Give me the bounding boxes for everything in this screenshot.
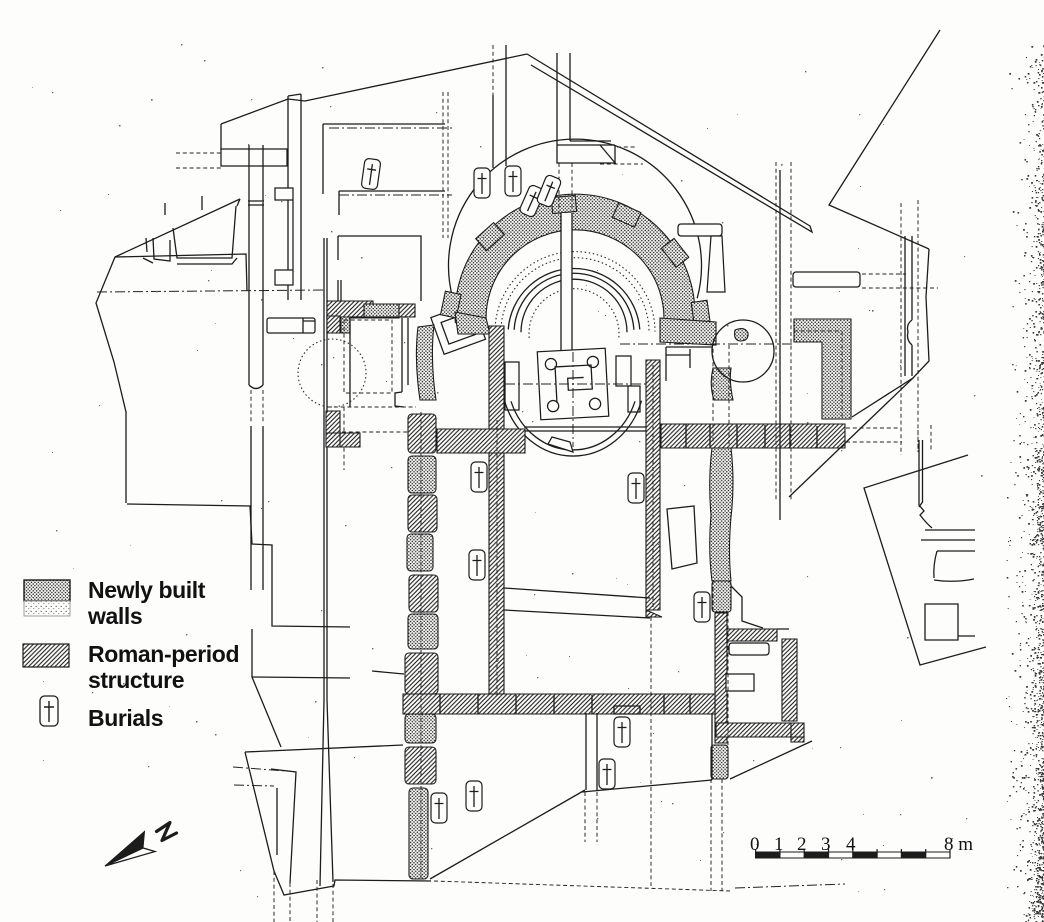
svg-text:walls: walls xyxy=(87,603,142,629)
svg-text:Roman-period: Roman-period xyxy=(88,641,239,667)
svg-text:structure: structure xyxy=(88,667,184,693)
svg-text:Burials: Burials xyxy=(88,705,163,731)
svg-text:Newly built: Newly built xyxy=(88,577,206,603)
